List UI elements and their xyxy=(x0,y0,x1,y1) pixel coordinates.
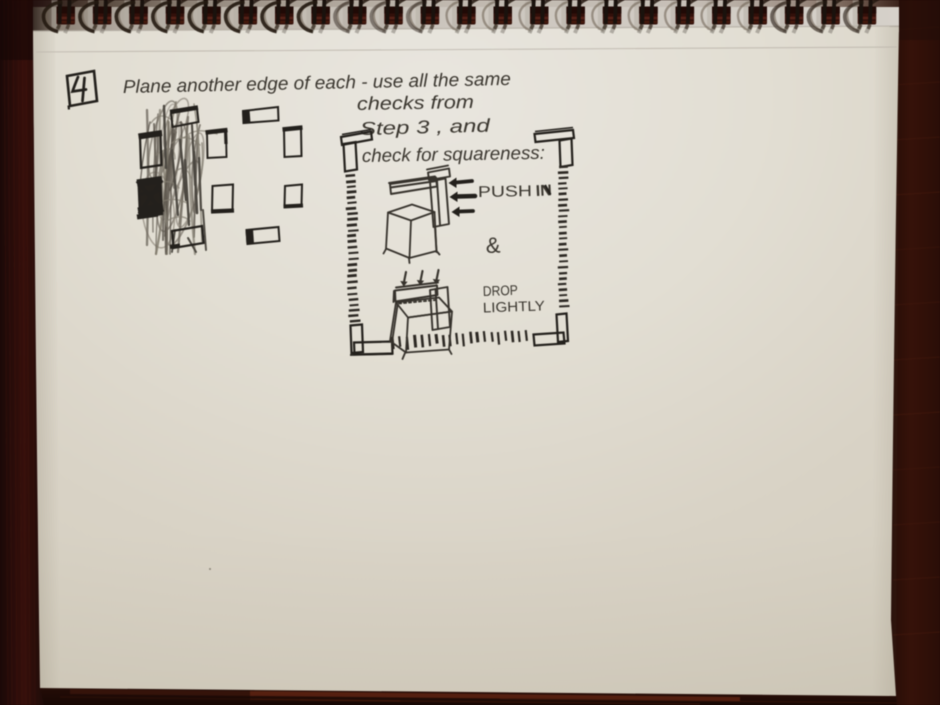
svg-text:&: & xyxy=(485,232,501,258)
svg-text:check for squareness:: check for squareness: xyxy=(362,142,545,166)
svg-text:DROP: DROP xyxy=(483,282,519,299)
svg-text:checks from: checks from xyxy=(357,91,474,114)
svg-text:PUSH: PUSH xyxy=(478,183,532,201)
svg-text:LIGHTLY: LIGHTLY xyxy=(483,297,546,315)
svg-text:Step 3 , and: Step 3 , and xyxy=(360,115,491,139)
